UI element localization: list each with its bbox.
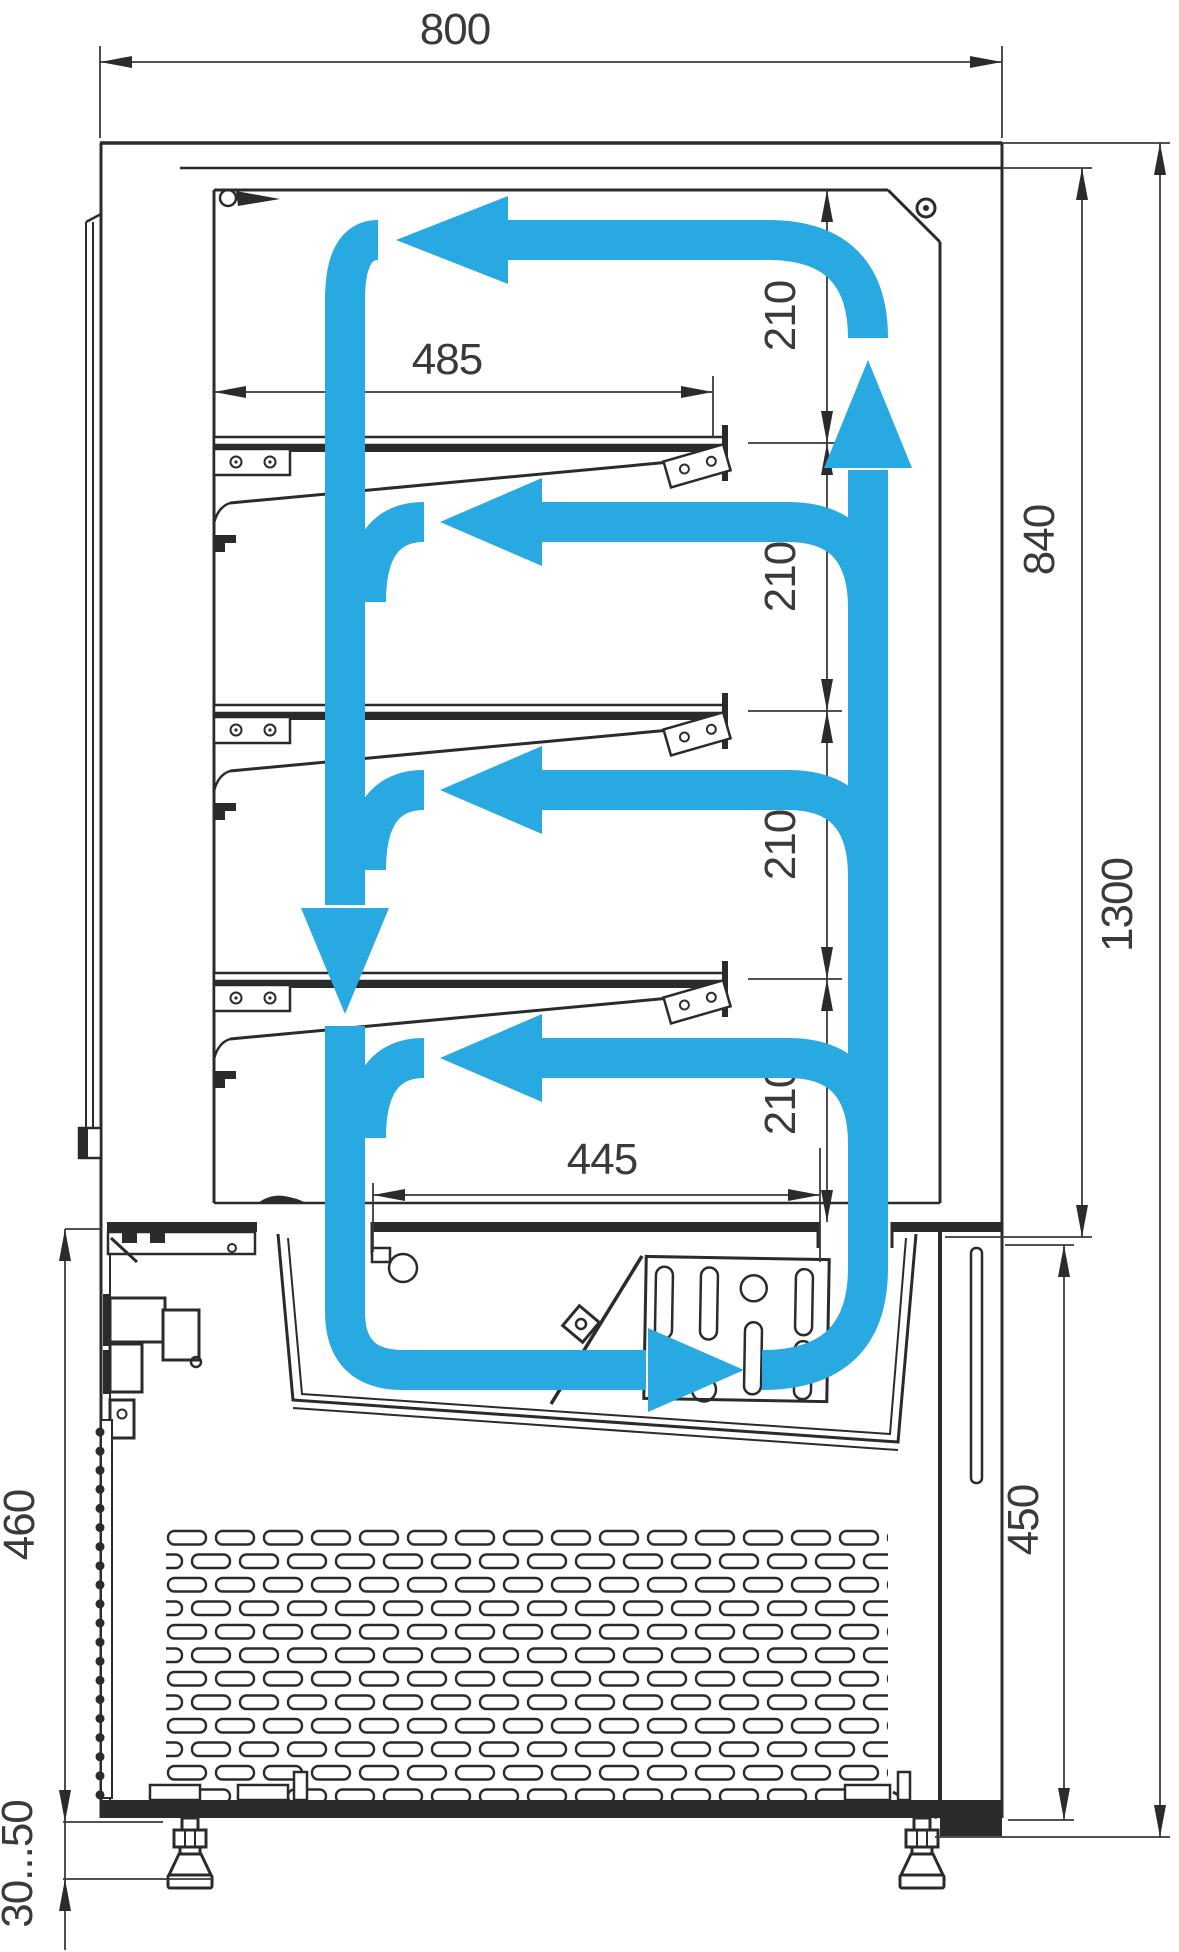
airflow-branch-2 xyxy=(540,790,868,876)
airflow-merge-3 xyxy=(366,1058,424,1138)
drain-bump xyxy=(258,1196,306,1203)
bottom-frame xyxy=(101,1800,1002,1818)
display-case-section-drawing: 800 485 445 210 210 210 210 840 1300 450… xyxy=(0,0,1179,1952)
arrow-up-icon xyxy=(824,360,912,468)
airflow-merge-2 xyxy=(366,790,424,870)
dim-label-shelf-depth: 485 xyxy=(412,335,482,384)
dim-label-base-inner-height: 460 xyxy=(0,1490,44,1560)
drain-tube xyxy=(971,1248,982,1483)
dim-label-shelf-spacing-1: 210 xyxy=(756,281,805,351)
airflow-merge-1 xyxy=(366,522,424,602)
compressor-bracket xyxy=(103,1294,201,1438)
ventilation-grille xyxy=(166,1529,888,1811)
dim-label-shelf-spacing-2: 210 xyxy=(756,542,805,612)
dim-label-overall-height: 1300 xyxy=(1093,858,1142,952)
arrow-left-shelf1-icon xyxy=(440,478,542,566)
front-glass xyxy=(79,214,101,1158)
dim-label-base-duct-span: 445 xyxy=(567,1135,637,1184)
dim-label-chamber-height: 840 xyxy=(1015,505,1064,575)
airflow-branch-1 xyxy=(540,522,868,608)
dim-label-shelf-spacing-3: 210 xyxy=(756,810,805,880)
lamp xyxy=(220,190,280,206)
arrow-left-shelf3-icon xyxy=(440,1014,542,1102)
arrow-left-shelf2-icon xyxy=(440,746,542,834)
dim-label-overall-width: 800 xyxy=(420,5,490,54)
dim-label-foot-adjustment: 30...50 xyxy=(0,1800,42,1928)
arrow-left-top-icon xyxy=(396,196,508,284)
sensor-ball xyxy=(389,1254,417,1282)
arrow-down-icon xyxy=(301,908,389,1014)
drawing-canvas: 800 485 445 210 210 210 210 840 1300 450… xyxy=(0,0,1179,1952)
dim-label-base-height: 450 xyxy=(999,1485,1048,1555)
airflow-branch-3 xyxy=(540,1058,868,1144)
airflow-top-run xyxy=(505,240,868,338)
